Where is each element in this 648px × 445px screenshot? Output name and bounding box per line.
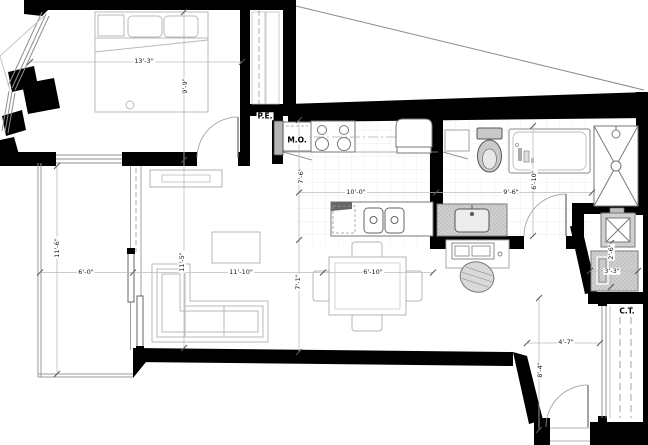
apartment-floor-plan: 13'-3" 9'-9" 7'-6" 10'-0" 9'-6" 6'-10" 1… bbox=[0, 0, 648, 445]
entry-door bbox=[546, 385, 590, 441]
dim-kitchen-depth: 7'-6" bbox=[298, 167, 305, 184]
dining-set bbox=[313, 242, 422, 331]
dim-bedroom-width: 13'-3" bbox=[133, 58, 155, 65]
dim-bedroom-depth: 9'-9" bbox=[182, 77, 189, 94]
toilet bbox=[477, 128, 502, 172]
bedroom-closet bbox=[252, 10, 279, 104]
dim-entry-width: 4'-7" bbox=[557, 339, 574, 346]
bathroom-vanity bbox=[437, 204, 507, 236]
dim-entry-depth: 8'-4" bbox=[537, 361, 544, 378]
dim-balcony-width: 6'-0" bbox=[77, 269, 94, 276]
dim-living-width: 11'-10" bbox=[228, 269, 254, 276]
electrical-panel bbox=[274, 121, 283, 155]
bedroom-door bbox=[197, 117, 238, 158]
electrical-panel-label: P.E. bbox=[257, 112, 274, 120]
floor-plan-drawing bbox=[0, 0, 648, 445]
microwave-label: M.O. bbox=[286, 136, 307, 144]
dim-dining-width: 6'-10" bbox=[362, 269, 384, 276]
building-edge-line bbox=[296, 6, 644, 90]
dim-laundry-depth: 2'-6" bbox=[608, 243, 615, 260]
bathtub bbox=[509, 129, 590, 173]
dim-living-depth: 11'-5" bbox=[179, 251, 186, 273]
coffee-table bbox=[212, 232, 260, 263]
sliding-door bbox=[127, 166, 144, 352]
shower bbox=[594, 126, 638, 206]
dim-bathroom-depth: 6'-10" bbox=[531, 169, 538, 191]
dim-bathroom-width: 9'-6" bbox=[502, 189, 519, 196]
washer bbox=[601, 208, 635, 247]
dim-laundry-width: 3'-3" bbox=[603, 268, 620, 275]
dim-living-clearance: 7'-1" bbox=[295, 273, 302, 290]
cooktop bbox=[311, 121, 355, 152]
dim-balcony-depth: 11'-6" bbox=[54, 237, 61, 259]
kitchen-island bbox=[331, 202, 433, 236]
tv-console bbox=[150, 170, 222, 187]
entry-closet bbox=[602, 306, 631, 418]
dim-kitchen-width: 10'-0" bbox=[345, 189, 367, 196]
coat-closet-label: C.T. bbox=[618, 307, 635, 315]
fridge bbox=[396, 119, 432, 153]
